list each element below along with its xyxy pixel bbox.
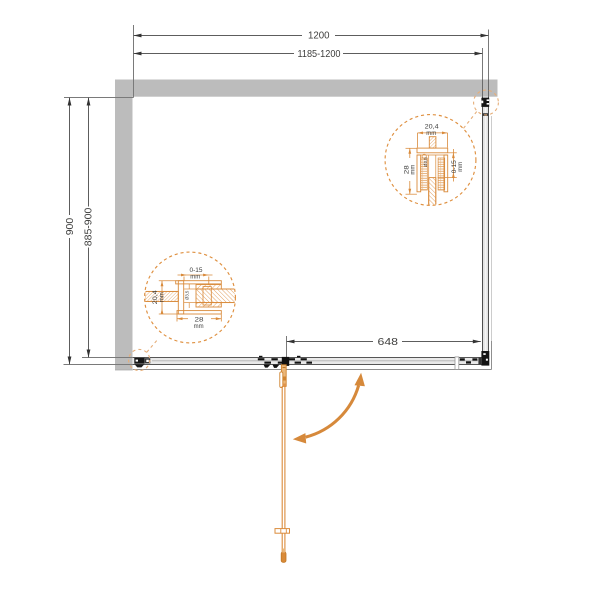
svg-text:mm: mm — [457, 161, 464, 171]
svg-text:mm: mm — [190, 274, 200, 281]
svg-text:885-900: 885-900 — [84, 207, 95, 246]
svg-text:Ø3,5: Ø3,5 — [185, 290, 190, 300]
svg-text:648: 648 — [378, 337, 399, 348]
svg-text:mm: mm — [194, 323, 204, 330]
svg-text:mm: mm — [158, 292, 165, 302]
svg-text:mm: mm — [409, 164, 416, 174]
svg-text:Ø3,5: Ø3,5 — [423, 157, 428, 167]
svg-text:900: 900 — [65, 218, 76, 236]
svg-text:mm: mm — [426, 130, 436, 137]
svg-text:1200: 1200 — [308, 31, 330, 42]
svg-text:1185-1200: 1185-1200 — [298, 49, 341, 60]
